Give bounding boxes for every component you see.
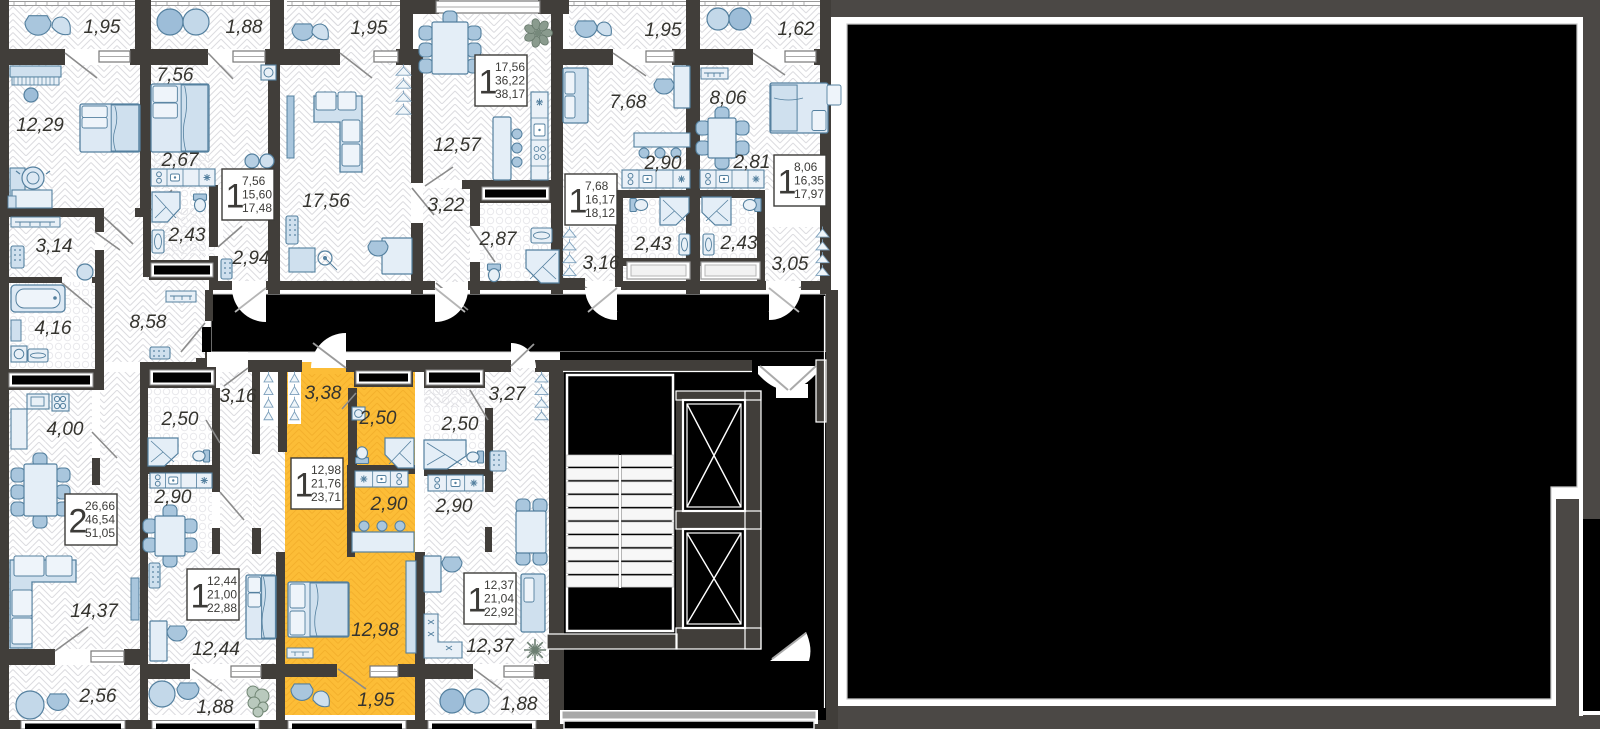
svg-text:3,16: 3,16 bbox=[220, 386, 257, 407]
svg-text:12,37: 12,37 bbox=[484, 578, 514, 592]
svg-text:46,54: 46,54 bbox=[85, 513, 115, 527]
svg-text:12,29: 12,29 bbox=[16, 115, 64, 136]
svg-text:23,71: 23,71 bbox=[311, 490, 341, 504]
svg-text:16,35: 16,35 bbox=[794, 174, 824, 188]
svg-text:7,56: 7,56 bbox=[242, 174, 266, 188]
svg-text:1,88: 1,88 bbox=[197, 697, 234, 718]
svg-text:15,60: 15,60 bbox=[242, 188, 272, 202]
svg-text:36,22: 36,22 bbox=[495, 74, 525, 88]
svg-text:38,17: 38,17 bbox=[495, 87, 525, 101]
svg-text:8,06: 8,06 bbox=[794, 160, 818, 174]
svg-text:26,66: 26,66 bbox=[85, 499, 115, 513]
svg-text:8,06: 8,06 bbox=[710, 88, 747, 109]
svg-text:1,95: 1,95 bbox=[351, 18, 388, 39]
svg-text:17,97: 17,97 bbox=[794, 187, 824, 201]
svg-text:21,76: 21,76 bbox=[311, 477, 341, 491]
svg-text:21,04: 21,04 bbox=[484, 592, 514, 606]
svg-text:2,43: 2,43 bbox=[634, 234, 672, 255]
svg-text:14,37: 14,37 bbox=[70, 601, 119, 622]
svg-text:16,17: 16,17 bbox=[585, 193, 615, 207]
svg-text:2,50: 2,50 bbox=[359, 408, 397, 429]
svg-text:2,81: 2,81 bbox=[733, 152, 771, 173]
svg-text:22,92: 22,92 bbox=[484, 605, 514, 619]
svg-text:21,00: 21,00 bbox=[207, 588, 237, 602]
svg-text:18,12: 18,12 bbox=[585, 206, 615, 220]
svg-text:2,67: 2,67 bbox=[161, 150, 200, 171]
svg-text:17,48: 17,48 bbox=[242, 201, 272, 215]
svg-text:3,05: 3,05 bbox=[772, 254, 809, 275]
svg-text:4,16: 4,16 bbox=[35, 318, 72, 339]
svg-text:1,95: 1,95 bbox=[358, 690, 395, 711]
svg-text:12,57: 12,57 bbox=[433, 135, 482, 156]
svg-text:7,68: 7,68 bbox=[610, 92, 647, 113]
svg-text:1,95: 1,95 bbox=[645, 20, 682, 41]
svg-text:7,68: 7,68 bbox=[585, 179, 609, 193]
svg-text:2,87: 2,87 bbox=[479, 229, 518, 250]
svg-text:2,90: 2,90 bbox=[370, 494, 408, 515]
svg-text:12,98: 12,98 bbox=[311, 463, 341, 477]
svg-text:2,50: 2,50 bbox=[161, 409, 199, 430]
svg-text:1,88: 1,88 bbox=[501, 694, 538, 715]
svg-text:3,22: 3,22 bbox=[428, 195, 465, 216]
svg-text:1,95: 1,95 bbox=[84, 17, 121, 38]
svg-text:3,14: 3,14 bbox=[36, 236, 73, 257]
svg-text:2,90: 2,90 bbox=[644, 153, 682, 174]
svg-text:12,37: 12,37 bbox=[466, 636, 515, 657]
svg-text:2,94: 2,94 bbox=[232, 248, 270, 269]
svg-text:17,56: 17,56 bbox=[495, 60, 525, 74]
svg-text:2,56: 2,56 bbox=[79, 686, 117, 707]
svg-text:12,44: 12,44 bbox=[192, 639, 240, 660]
svg-text:3,27: 3,27 bbox=[489, 384, 527, 405]
svg-text:8,58: 8,58 bbox=[130, 312, 167, 333]
svg-text:2,50: 2,50 bbox=[441, 414, 479, 435]
svg-text:2,90: 2,90 bbox=[154, 487, 192, 508]
svg-text:22,88: 22,88 bbox=[207, 601, 237, 615]
svg-text:12,98: 12,98 bbox=[351, 620, 399, 641]
svg-text:1,62: 1,62 bbox=[778, 19, 815, 40]
svg-text:51,05: 51,05 bbox=[85, 526, 115, 540]
svg-text:17,56: 17,56 bbox=[302, 191, 350, 212]
svg-text:1,88: 1,88 bbox=[226, 17, 263, 38]
svg-text:4,00: 4,00 bbox=[47, 419, 84, 440]
svg-text:2,43: 2,43 bbox=[168, 225, 206, 246]
svg-text:2,90: 2,90 bbox=[435, 496, 473, 517]
svg-text:3,38: 3,38 bbox=[305, 383, 342, 404]
svg-text:7,56: 7,56 bbox=[157, 65, 194, 86]
svg-text:3,16: 3,16 bbox=[583, 253, 620, 274]
svg-text:12,44: 12,44 bbox=[207, 574, 237, 588]
svg-text:2,43: 2,43 bbox=[720, 233, 758, 254]
